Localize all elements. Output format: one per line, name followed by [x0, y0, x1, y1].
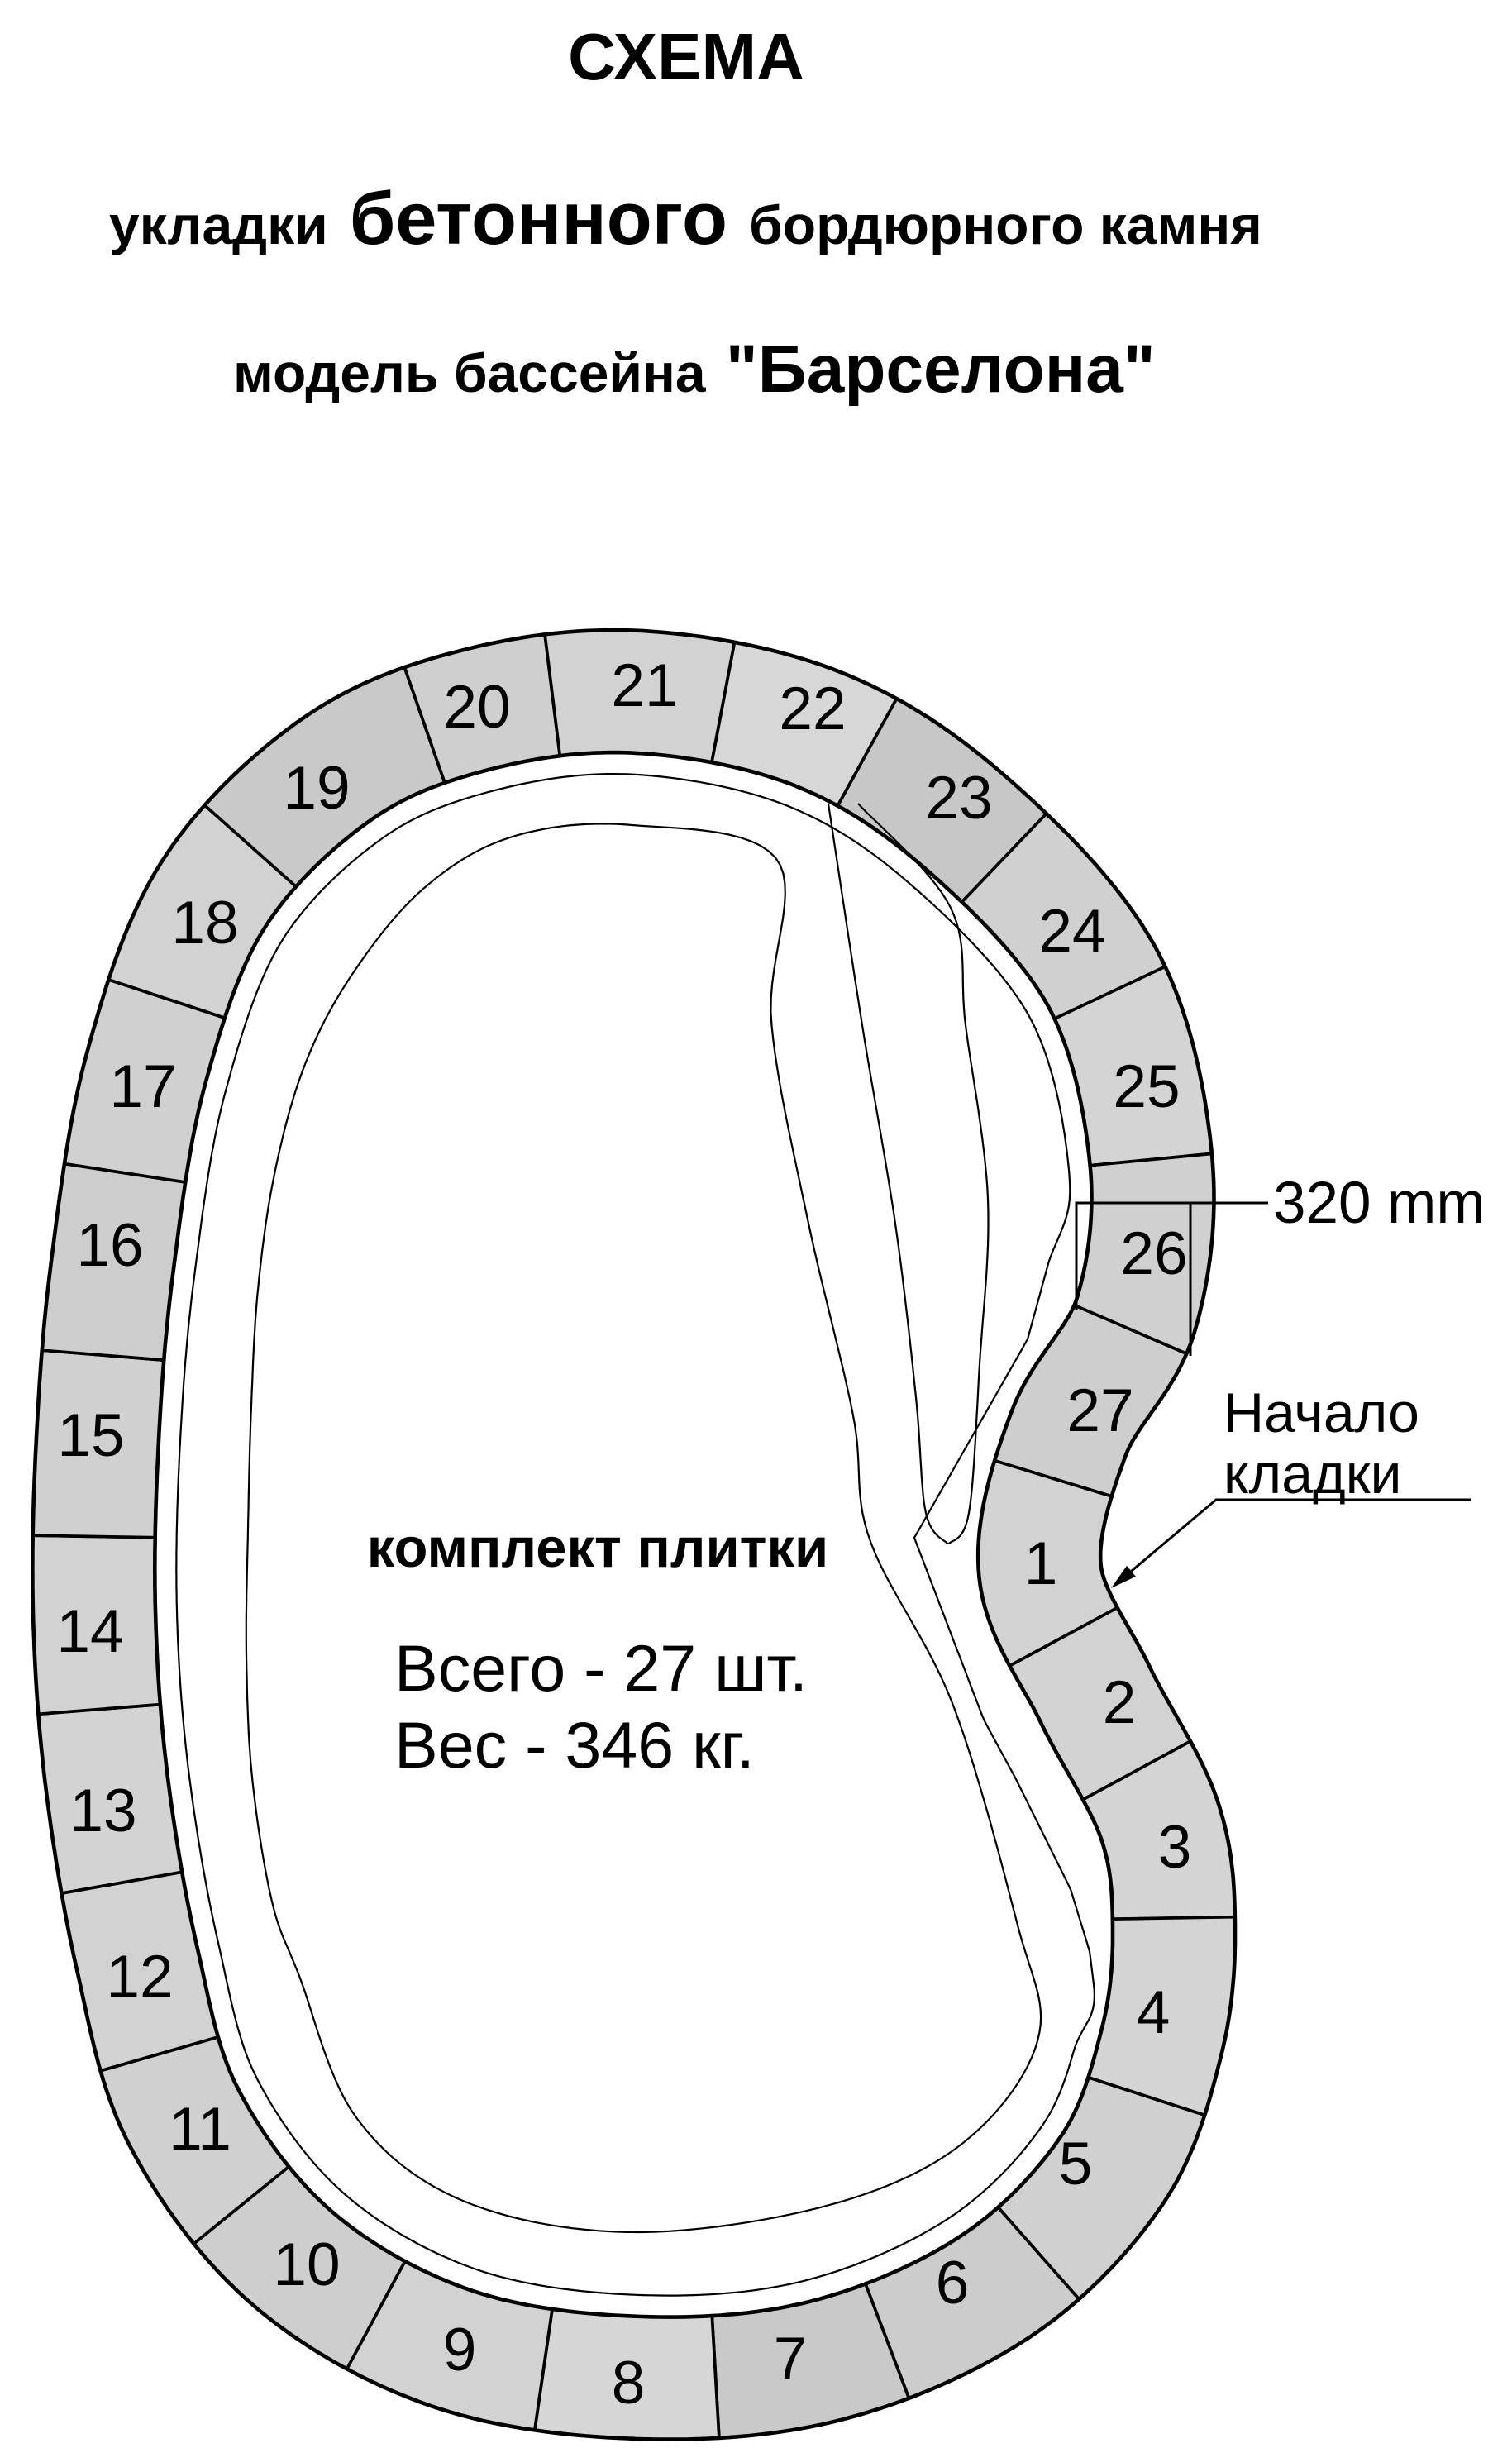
svg-text:23: 23: [925, 765, 992, 832]
svg-text:8: 8: [612, 2350, 646, 2417]
svg-text:17: 17: [109, 1053, 176, 1120]
svg-text:12: 12: [106, 1944, 173, 2011]
svg-text:14: 14: [56, 1598, 123, 1665]
svg-text:20: 20: [443, 674, 510, 741]
svg-text:21: 21: [611, 652, 678, 719]
svg-text:1: 1: [1024, 1530, 1058, 1597]
svg-text:16: 16: [76, 1212, 143, 1279]
svg-text:22: 22: [779, 675, 846, 742]
svg-text:7: 7: [774, 2326, 808, 2393]
svg-text:6: 6: [936, 2250, 970, 2317]
svg-text:Вес - 346 кг.: Вес - 346 кг.: [394, 1708, 755, 1782]
svg-text:11: 11: [169, 2096, 231, 2163]
svg-text:26: 26: [1120, 1220, 1187, 1287]
svg-text:24: 24: [1038, 898, 1105, 965]
svg-text:9: 9: [443, 2317, 477, 2384]
svg-text:13: 13: [69, 1778, 136, 1844]
svg-text:3: 3: [1158, 1814, 1192, 1881]
svg-text:10: 10: [273, 2231, 340, 2298]
svg-text:комплект плитки: комплект плитки: [367, 1517, 828, 1579]
svg-text:19: 19: [283, 755, 350, 822]
svg-text:5: 5: [1059, 2131, 1093, 2197]
svg-text:Начало: Начало: [1223, 1381, 1419, 1444]
svg-text:кладки: кладки: [1223, 1443, 1401, 1506]
svg-text:15: 15: [57, 1402, 124, 1469]
svg-text:320 mm: 320 mm: [1273, 1171, 1485, 1236]
svg-text:модель бассейна "Барселона": модель бассейна "Барселона": [233, 332, 1156, 407]
svg-text:Всего - 27 шт.: Всего - 27 шт.: [394, 1631, 808, 1705]
svg-text:2: 2: [1103, 1669, 1137, 1736]
svg-text:27: 27: [1066, 1377, 1133, 1444]
svg-text:18: 18: [171, 890, 238, 957]
svg-text:СХЕМА: СХЕМА: [568, 20, 804, 93]
svg-text:4: 4: [1137, 1979, 1171, 2046]
svg-text:25: 25: [1113, 1053, 1180, 1120]
